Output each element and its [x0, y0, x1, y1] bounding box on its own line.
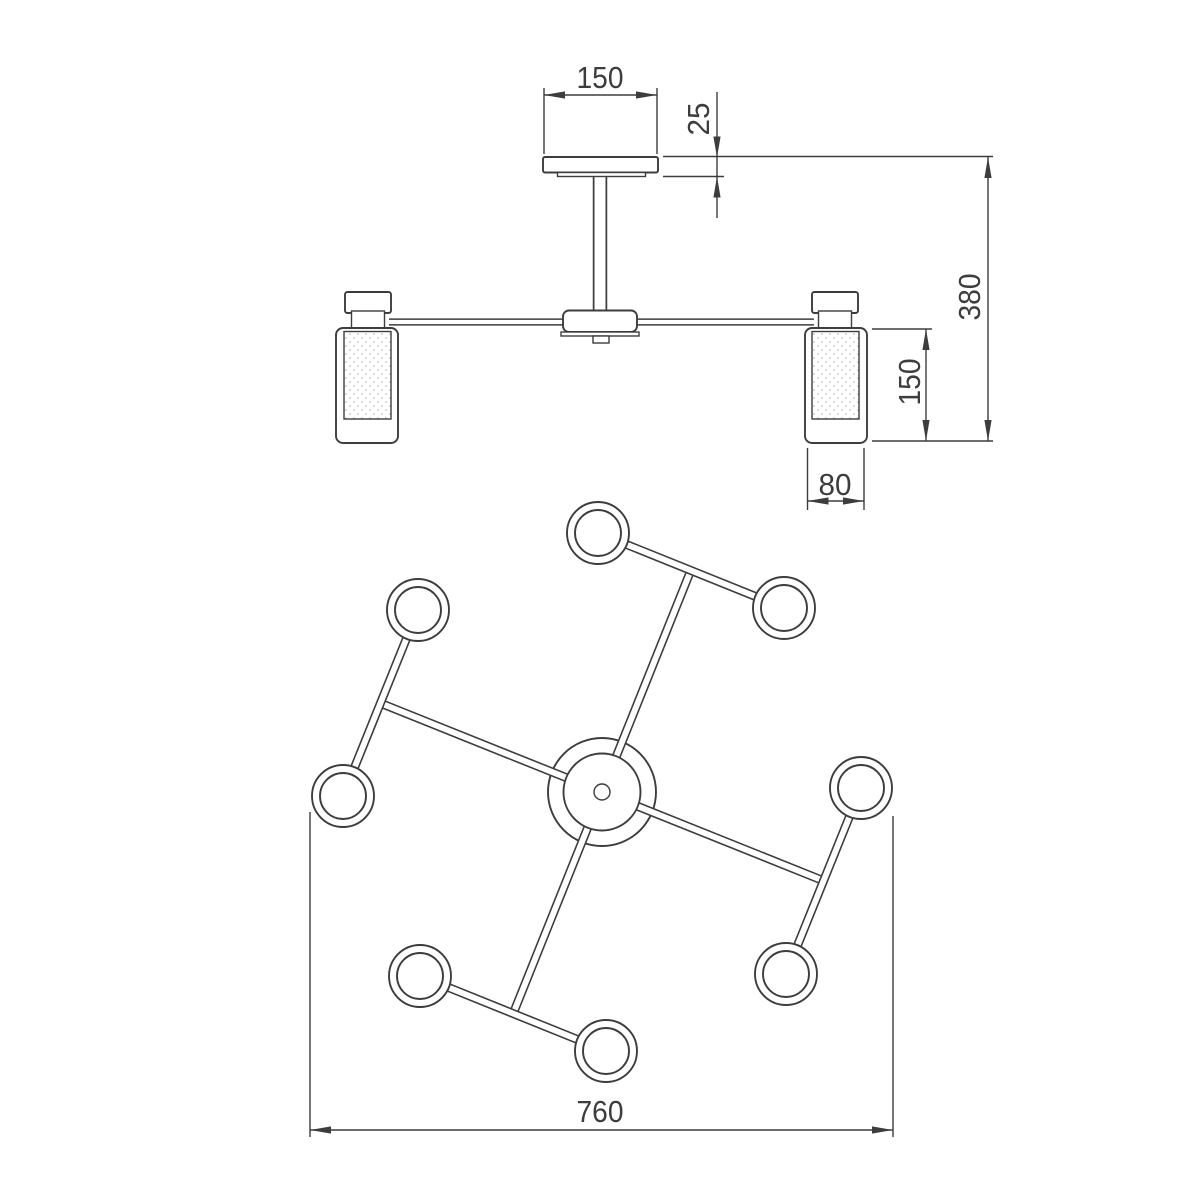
canopy-plate [543, 157, 658, 173]
arm-assembly-west [312, 579, 602, 827]
dim-label-overall-width: 760 [577, 1094, 624, 1129]
hub-center-hole [594, 784, 610, 800]
dim-shade-height: 150 [872, 329, 932, 441]
lamp-diffuser [812, 332, 859, 420]
dim-label-canopy-thickness: 25 [681, 103, 716, 136]
arm-assembly-south [389, 792, 637, 1082]
lamp-socket [812, 292, 858, 313]
hub-tab [593, 336, 609, 343]
lamp-front-right [805, 292, 867, 443]
dim-overall-height: 380 [872, 157, 993, 441]
hub-body [563, 311, 637, 333]
blueprint-canvas: 150 25 380 150 80 [0, 0, 1200, 1200]
top-view [312, 502, 892, 1082]
arrowhead-up [922, 329, 929, 350]
arrowhead-down [922, 420, 929, 441]
dim-label-overall-height: 380 [952, 274, 987, 321]
arrowhead-down [713, 137, 720, 158]
dim-label-canopy-width: 150 [577, 60, 624, 95]
arrowhead-left [544, 91, 565, 98]
front-view [336, 157, 867, 443]
arrowhead-right [636, 91, 657, 98]
canopy-rim [558, 173, 646, 177]
dim-label-shade-height: 150 [892, 359, 927, 406]
dim-shade-width: 80 [808, 448, 865, 510]
lamp-front-left [336, 292, 398, 443]
arrowhead-up [713, 177, 720, 198]
arrowhead-right [872, 1126, 893, 1133]
technical-drawing: 150 25 380 150 80 [0, 0, 1200, 1200]
arrowhead-down [984, 420, 991, 441]
arm-assembly-north [567, 502, 815, 792]
dim-canopy-thickness: 25 [663, 92, 993, 218]
arm-assembly-east [602, 757, 892, 1005]
dim-canopy-width: 150 [544, 60, 657, 154]
arrowhead-up [984, 157, 991, 178]
lamp-socket [345, 292, 391, 313]
dim-label-shade-width: 80 [819, 467, 852, 502]
lamp-diffuser [344, 332, 391, 420]
arrowhead-left [310, 1126, 331, 1133]
